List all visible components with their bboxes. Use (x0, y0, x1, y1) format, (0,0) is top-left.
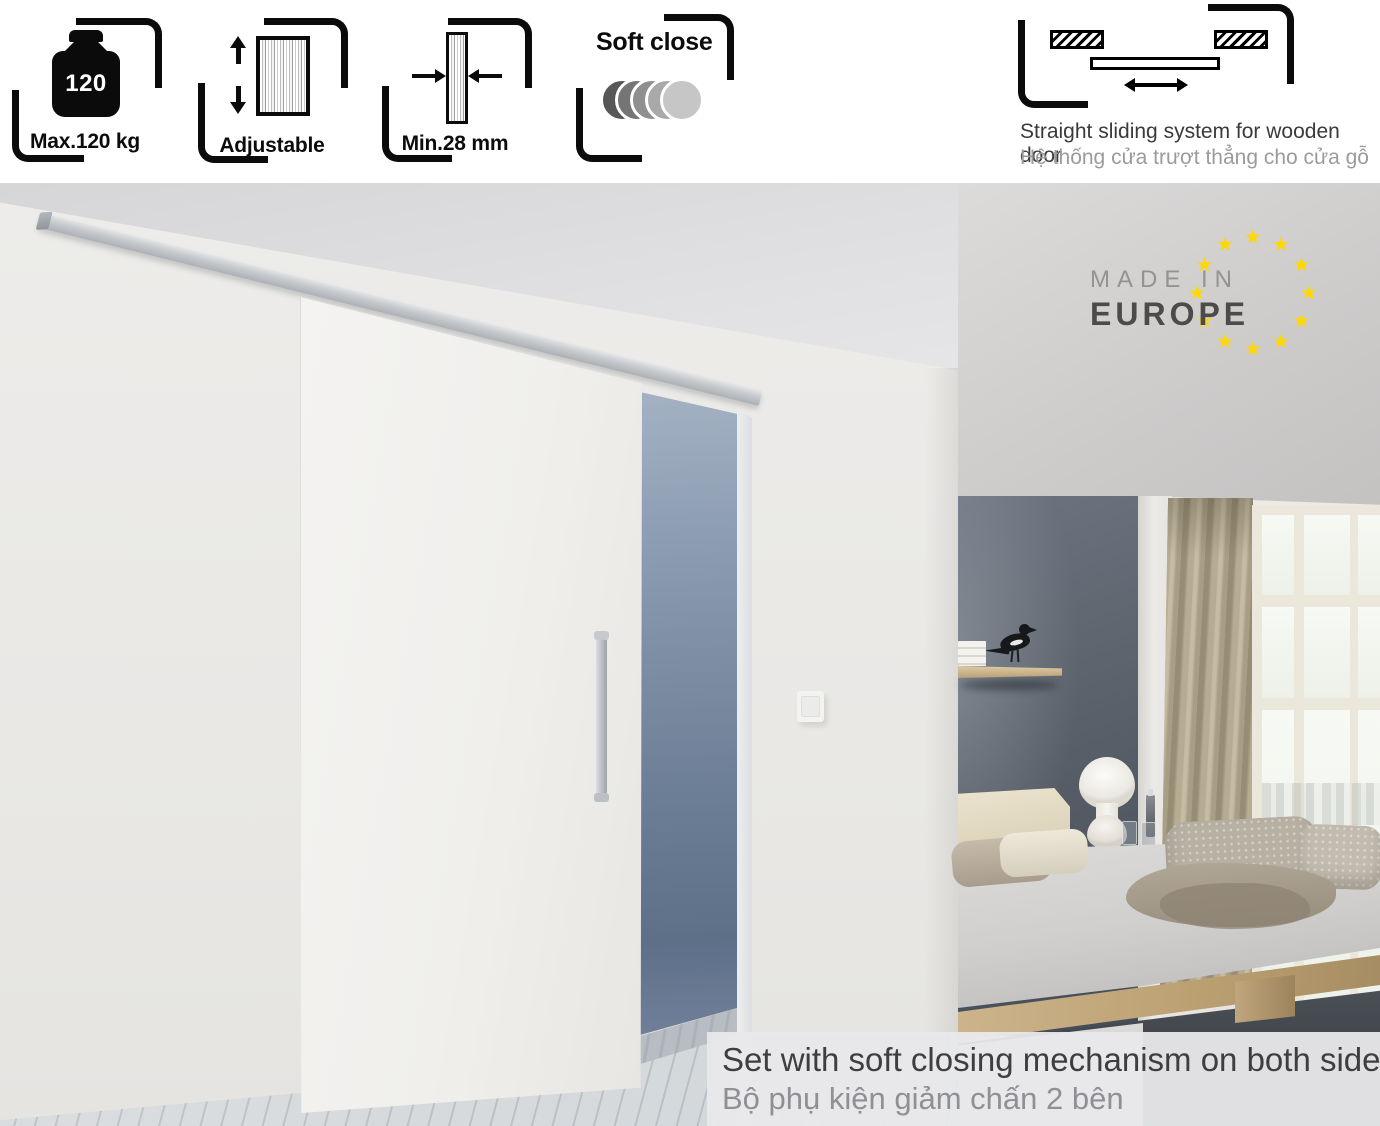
made-in-text: MADE IN (1090, 266, 1239, 294)
wall-section-icon (1214, 30, 1268, 49)
bird-leg (1010, 649, 1013, 662)
drinking-glasses (1122, 821, 1158, 847)
features-row: 120 Max.120 kg Adjustable Min.28 mm (0, 0, 1380, 183)
max-weight-badge: 120 Max.120 kg (8, 10, 162, 162)
door-jamb (737, 411, 752, 1126)
system-caption-vi: Hệ thống cửa trượt thẳng cho cửa gỗ (1020, 146, 1369, 170)
window-pane (1262, 515, 1294, 595)
arrow-left-line (412, 74, 436, 78)
fur-throw-fold (1160, 883, 1310, 929)
window-pane (1304, 607, 1350, 698)
caption-line-vi: Bộ phụ kiện giảm chấn 2 bên (722, 1080, 1380, 1118)
soft-close-label: Soft close (596, 28, 712, 57)
arrow-right-line (478, 74, 502, 78)
weight-body: 120 (52, 51, 120, 117)
door-panel-icon (1090, 57, 1220, 70)
star-icon (1272, 329, 1290, 354)
window-pane (1358, 515, 1380, 595)
star-icon (1272, 232, 1290, 257)
star-icon (1244, 337, 1262, 362)
pillow (999, 828, 1090, 878)
bird-beak (1029, 627, 1037, 633)
star-icon (1293, 253, 1311, 278)
soft-close-icon (600, 78, 704, 122)
wall-corner-shading (925, 368, 958, 1126)
wall-section-icon (1050, 30, 1104, 49)
caption-line-en: Set with soft closing mechanism on both … (722, 1040, 1380, 1080)
weight-value: 120 (65, 70, 107, 98)
min-thickness-badge: Min.28 mm (378, 10, 532, 162)
glass (1141, 822, 1156, 846)
room-photo: MADE IN EUROPE Set with soft closing mec… (0, 183, 1380, 1126)
arrow-right-icon (1177, 78, 1188, 92)
arrow-up-stem (236, 46, 241, 64)
adjustable-label: Adjustable (196, 134, 348, 158)
door-thickness-icon (446, 32, 468, 124)
lamp-base (1087, 815, 1127, 849)
min-thickness-label: Min.28 mm (378, 132, 532, 156)
soft-close-badge: Soft close (576, 8, 736, 166)
book-stack (958, 641, 986, 666)
slide-direction-icon (1124, 78, 1188, 92)
star-icon (1216, 232, 1234, 257)
sliding-door-panel (300, 297, 642, 1113)
adjustable-badge: Adjustable (196, 10, 348, 165)
bird-leg (1017, 649, 1020, 662)
star-icon (1293, 309, 1311, 334)
window-pane (1358, 607, 1380, 698)
made-in-europe-badge: MADE IN EUROPE (1075, 223, 1335, 383)
damping-circle (660, 78, 704, 122)
lamp-dome (1079, 757, 1135, 809)
open-doorway (640, 392, 737, 1035)
weight-icon: 120 (52, 30, 120, 126)
wood-panel-icon (256, 36, 310, 116)
arrow-line (1132, 83, 1180, 87)
arrow-down-icon (230, 102, 246, 114)
door-handle (596, 638, 607, 795)
max-weight-label: Max.120 kg (8, 130, 162, 154)
photo-caption-band: Set with soft closing mechanism on both … (707, 1032, 1380, 1126)
bird-sculpture (988, 613, 1048, 669)
window-pane (1304, 515, 1350, 595)
bed-leg (1235, 975, 1295, 1023)
shelf-shadow (960, 680, 1058, 690)
window-pane (1262, 607, 1294, 698)
product-banner: 120 Max.120 kg Adjustable Min.28 mm (0, 0, 1380, 1126)
glass (1122, 821, 1137, 845)
star-icon (1244, 225, 1262, 250)
europe-text: EUROPE (1090, 296, 1249, 333)
sliding-system-diagram: Straight sliding system for wooden door … (1012, 4, 1372, 182)
light-switch (797, 691, 824, 722)
arrow-right-icon (435, 69, 446, 83)
star-icon (1300, 281, 1318, 306)
